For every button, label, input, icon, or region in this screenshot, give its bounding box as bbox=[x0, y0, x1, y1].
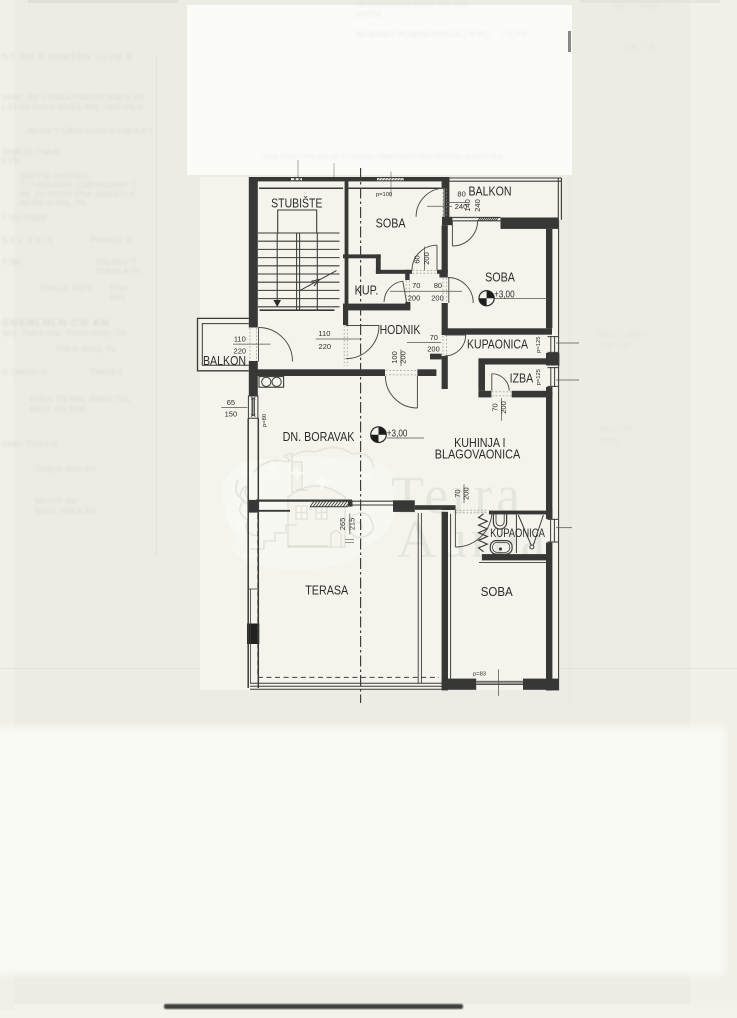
svg-text:SOBA: SOBA bbox=[376, 216, 406, 231]
svg-text:70: 70 bbox=[430, 333, 438, 342]
svg-text:80: 80 bbox=[457, 190, 465, 199]
svg-text:220: 220 bbox=[234, 346, 247, 355]
svg-text:200: 200 bbox=[461, 487, 470, 500]
svg-text:p=83: p=83 bbox=[473, 671, 486, 677]
svg-text:BALKON: BALKON bbox=[468, 185, 511, 199]
svg-text:BALKON: BALKON bbox=[203, 354, 246, 368]
svg-text:STUBIŠTE: STUBIŠTE bbox=[271, 196, 322, 210]
svg-text:265: 265 bbox=[338, 518, 347, 531]
svg-text:IZBA: IZBA bbox=[510, 371, 534, 385]
svg-text:60: 60 bbox=[412, 255, 421, 263]
svg-text:KUPAONICA: KUPAONICA bbox=[490, 527, 545, 540]
svg-text:150: 150 bbox=[225, 409, 238, 418]
svg-text:p=125: p=125 bbox=[536, 369, 542, 385]
svg-text:KUPAONICA: KUPAONICA bbox=[467, 337, 528, 351]
svg-text:200: 200 bbox=[427, 345, 440, 354]
svg-text:65: 65 bbox=[227, 398, 235, 407]
svg-text:p=100: p=100 bbox=[376, 192, 392, 198]
svg-text:110: 110 bbox=[234, 335, 246, 344]
svg-text:70: 70 bbox=[412, 281, 420, 290]
svg-text:200: 200 bbox=[398, 351, 407, 364]
svg-text:p=125: p=125 bbox=[536, 337, 542, 353]
svg-text:140: 140 bbox=[463, 199, 472, 212]
svg-text:+3,00: +3,00 bbox=[387, 428, 408, 439]
svg-text:DN. BORAVAK: DN. BORAVAK bbox=[283, 429, 355, 444]
svg-text:240: 240 bbox=[473, 199, 482, 212]
svg-text:p=80: p=80 bbox=[262, 414, 268, 427]
svg-text:BLAGOVAONICA: BLAGOVAONICA bbox=[435, 447, 521, 462]
svg-text:200: 200 bbox=[431, 293, 444, 302]
svg-text:200: 200 bbox=[408, 293, 421, 302]
svg-text:KUP.: KUP. bbox=[355, 282, 379, 297]
svg-text:TERASA: TERASA bbox=[305, 583, 348, 598]
svg-text:80: 80 bbox=[434, 281, 442, 290]
svg-text:110: 110 bbox=[318, 329, 330, 338]
svg-text:215: 215 bbox=[348, 518, 357, 531]
svg-text:SOBA: SOBA bbox=[481, 584, 514, 599]
svg-text:SOBA: SOBA bbox=[485, 269, 515, 284]
svg-text:200: 200 bbox=[499, 401, 508, 414]
svg-text:220: 220 bbox=[319, 342, 332, 351]
svg-text:+3,00: +3,00 bbox=[494, 289, 515, 300]
svg-text:HODNIK: HODNIK bbox=[380, 323, 421, 337]
svg-text:200: 200 bbox=[422, 252, 431, 265]
